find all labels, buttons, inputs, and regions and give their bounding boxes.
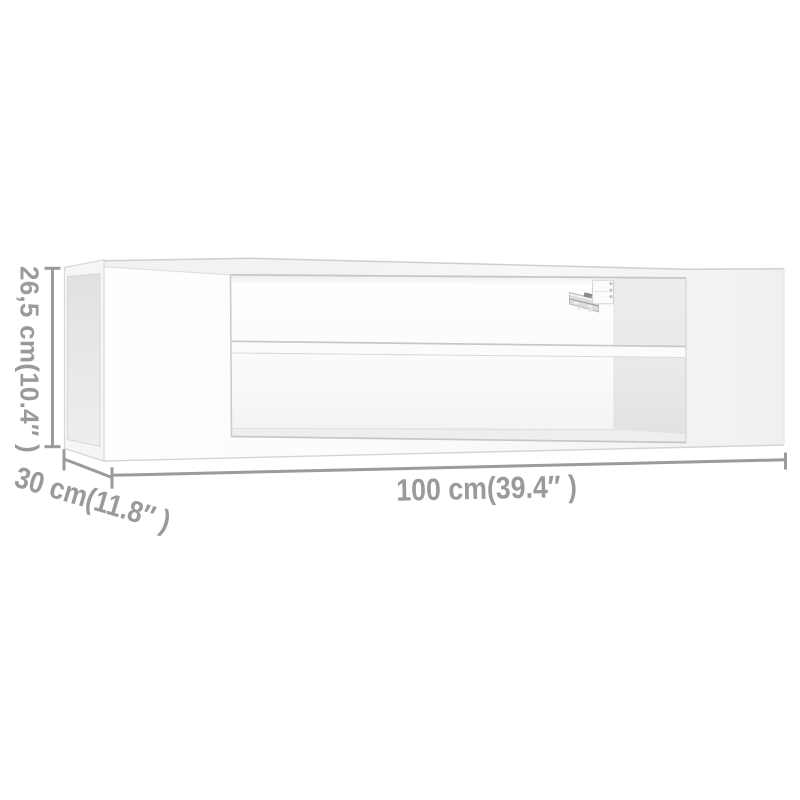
svg-text:100 cm(39.4″ ): 100 cm(39.4″ ) bbox=[396, 470, 577, 508]
svg-text:26,5 cm(10.4″ ): 26,5 cm(10.4″ ) bbox=[15, 266, 45, 453]
